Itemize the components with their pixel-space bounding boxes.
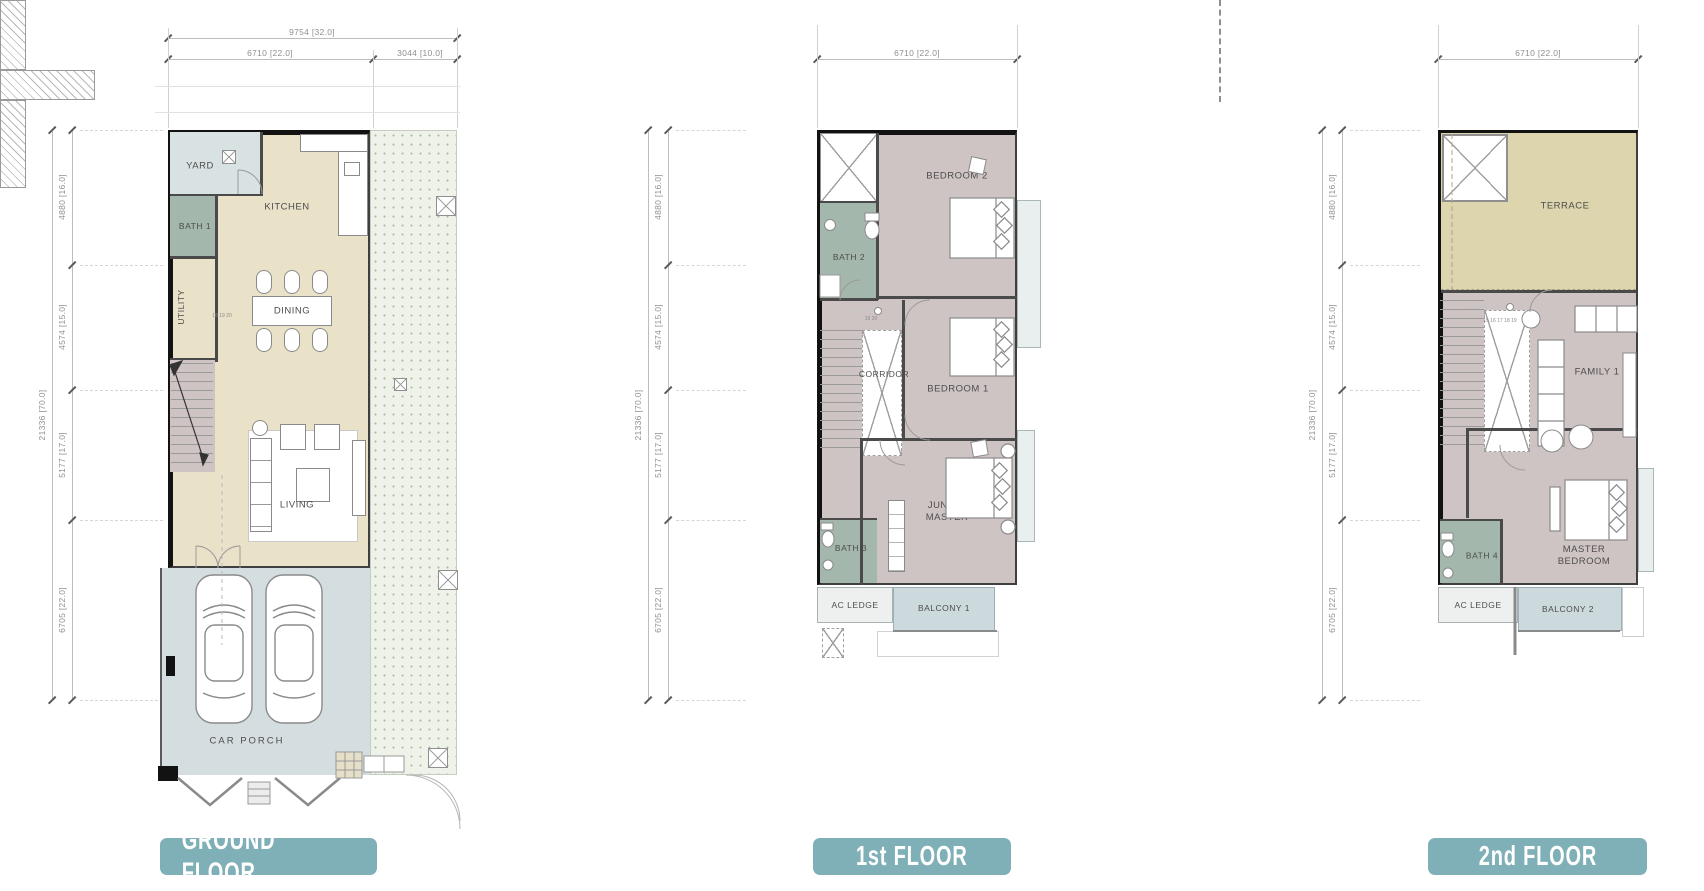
driveway-arc [406, 775, 460, 829]
dim-left-overall: 21336 [70.0] [37, 390, 47, 441]
dim-top-right: 3044 [10.0] [397, 48, 443, 58]
car-icon [196, 575, 252, 723]
dim-top-overall: 9754 [32.0] [289, 27, 335, 37]
ground-floor-badge: GROUND FLOOR [160, 838, 377, 875]
dim-line [168, 59, 457, 60]
bed-icon [1550, 480, 1627, 540]
bed-icon [950, 198, 1014, 258]
toilet-icon [865, 213, 879, 239]
wardrobe-hatch [0, 100, 26, 188]
chair-icon [971, 440, 988, 457]
second-lineart [1430, 125, 1670, 670]
pouf-icon [1569, 425, 1593, 449]
sink-icon [823, 560, 833, 570]
sink-icon [825, 220, 836, 231]
bed-icon [950, 318, 1014, 376]
level-marker-icon [1470, 304, 1514, 311]
door-arc [238, 170, 262, 194]
sink-icon [1443, 568, 1453, 578]
level-marker-icon [840, 308, 882, 315]
gate-post [248, 782, 270, 804]
wardrobe-hatch [0, 0, 26, 70]
entry-step [364, 756, 404, 772]
first-lineart [810, 125, 1065, 670]
lot-boundary-line [1219, 0, 1221, 102]
ground-lineart [150, 125, 470, 815]
first-floor-badge-label: 1st FLOOR [856, 840, 968, 872]
tv-console [1623, 353, 1636, 437]
bed-icon [946, 444, 1015, 534]
toilet-icon [821, 523, 834, 547]
car-icon [266, 575, 322, 723]
entry-porch-tile [336, 752, 362, 778]
second-floor-badge: 2nd FLOOR [1428, 838, 1647, 875]
entry-double-door [196, 546, 240, 568]
floorplan-sheet: 9754 [32.0] 6710 [22.0] 3044 [10.0] 2133… [0, 0, 1704, 891]
closet-hatch [0, 70, 95, 100]
stairs-arrow-icon [170, 361, 208, 465]
shower-icon [820, 275, 840, 297]
chair-icon [968, 157, 986, 175]
first-floor-badge: 1st FLOOR [813, 838, 1011, 875]
sofa-icon [1538, 306, 1637, 446]
dim-top-second: 6710 [22.0] [1515, 48, 1561, 58]
ground-floor-badge-label: GROUND FLOOR [182, 824, 356, 889]
door-arc [840, 280, 930, 465]
dim-top-left: 6710 [22.0] [247, 48, 293, 58]
dim-line [168, 38, 457, 39]
second-floor-badge-label: 2nd FLOOR [1478, 840, 1596, 872]
toilet-icon [1441, 533, 1454, 557]
side-table-icon [1522, 310, 1540, 328]
pouf-icon [1541, 430, 1563, 452]
dim-top-first: 6710 [22.0] [894, 48, 940, 58]
